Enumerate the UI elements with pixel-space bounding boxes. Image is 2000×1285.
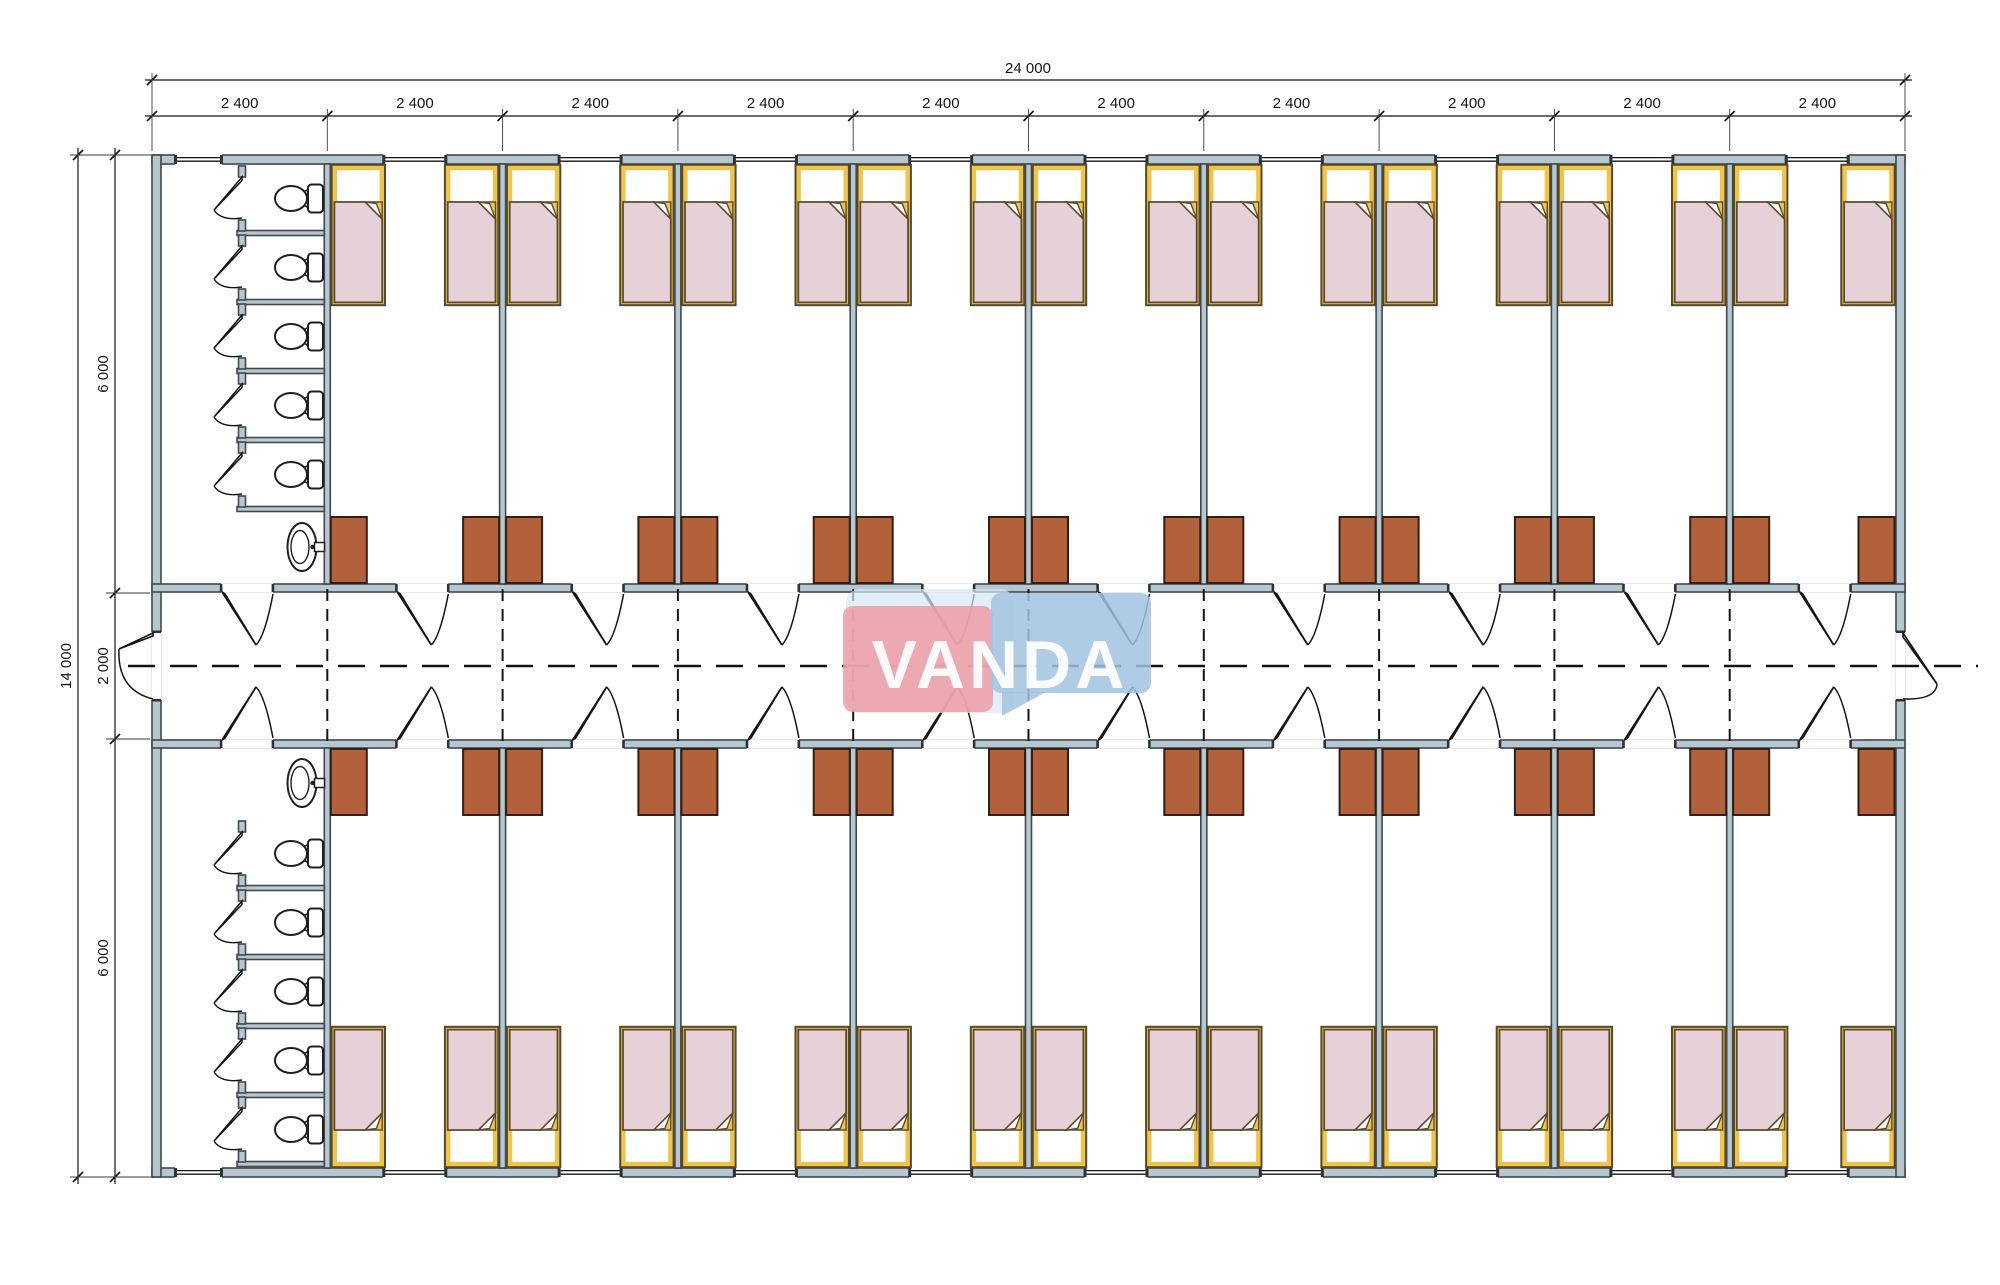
- window-opening: [734, 1167, 797, 1178]
- toilet-tank: [308, 185, 323, 213]
- window-jamb: [1496, 155, 1499, 164]
- door-jamb: [1148, 740, 1151, 748]
- bed-blanket: [1149, 1030, 1197, 1130]
- window-jamb: [1321, 155, 1324, 164]
- door-jamb: [220, 584, 223, 592]
- bed-blanket: [448, 202, 496, 302]
- bed: [507, 1027, 560, 1167]
- window-opening: [1085, 1167, 1148, 1178]
- bed-blanket: [974, 202, 1022, 302]
- stall-door-arc: [214, 417, 242, 426]
- door-leaf: [1800, 687, 1834, 740]
- window-jamb: [1609, 155, 1612, 164]
- bed: [1322, 1027, 1375, 1167]
- bed: [1734, 1027, 1787, 1167]
- door-jamb: [1674, 584, 1677, 592]
- bed-blanket: [1562, 202, 1610, 302]
- door-leaf: [1903, 633, 1937, 684]
- door-jamb: [973, 740, 976, 748]
- door-swing-arc: [1658, 594, 1675, 645]
- partition-wall: [675, 748, 681, 1168]
- door-jamb: [1447, 584, 1450, 592]
- wardrobe-cabinet: [857, 749, 893, 815]
- window-jamb: [1434, 1168, 1437, 1177]
- stall-door-jamb: [239, 289, 246, 300]
- toilet-bowl: [275, 1048, 307, 1073]
- bed: [620, 1027, 673, 1167]
- window-jamb: [733, 155, 736, 164]
- stall-door-arc: [214, 1072, 242, 1081]
- toilet-tank: [308, 254, 323, 282]
- door-jamb: [1849, 584, 1852, 592]
- bed-blanket: [798, 1030, 846, 1130]
- wardrobe-cabinet: [1032, 749, 1068, 815]
- door-swing-arc: [607, 687, 624, 738]
- partition-wall: [500, 164, 506, 584]
- window-opening: [1786, 154, 1849, 165]
- door-jamb: [570, 740, 573, 748]
- door-swing-arc: [1903, 684, 1937, 699]
- door-swing-arc: [1834, 594, 1851, 645]
- door-opening: [1273, 739, 1325, 749]
- window-opening: [1260, 1167, 1323, 1178]
- bed: [796, 1027, 849, 1167]
- door-opening: [221, 739, 273, 749]
- door-jamb: [1096, 740, 1099, 748]
- bed: [1322, 165, 1375, 305]
- toilet-bowl: [275, 462, 307, 487]
- bed-blanket: [1386, 202, 1434, 302]
- partition-wall: [850, 748, 856, 1168]
- dimension-label: 2 400: [1799, 95, 1837, 112]
- wardrobe-cabinet: [681, 517, 717, 583]
- door-leaf: [1449, 592, 1483, 645]
- stall-door-leaf: [214, 1108, 242, 1141]
- stall-door-arc: [214, 279, 242, 288]
- door-opening: [1799, 739, 1851, 749]
- door-swing-arc: [431, 594, 448, 645]
- door-swing-arc: [256, 687, 273, 738]
- door-leaf: [573, 592, 607, 645]
- toilet-bowl: [275, 841, 307, 866]
- stall-partition: [237, 1024, 324, 1029]
- wardrobe-cabinet: [1558, 749, 1594, 815]
- sink-drain: [310, 781, 314, 785]
- window-jamb: [1146, 1168, 1149, 1177]
- window-jamb: [174, 1168, 177, 1177]
- toilet: [275, 1047, 323, 1075]
- partition-wall: [1727, 164, 1733, 584]
- toilet-bowl: [275, 324, 307, 349]
- wardrobe-cabinet: [1207, 749, 1243, 815]
- toilet-tank: [308, 840, 323, 868]
- door-jamb: [1323, 584, 1326, 592]
- toilet-tank: [308, 978, 323, 1006]
- bed-blanket: [685, 1030, 733, 1130]
- toilet: [275, 1116, 323, 1144]
- bed: [971, 1027, 1024, 1167]
- wardrobe-cabinet: [1558, 517, 1594, 583]
- bed-blanket: [1324, 1030, 1372, 1130]
- stall-door-jamb: [239, 1028, 246, 1039]
- bed-blanket: [334, 1030, 382, 1130]
- bed-blanket: [685, 202, 733, 302]
- window-opening: [734, 154, 797, 165]
- door-leaf: [397, 592, 431, 645]
- window-jamb: [1084, 155, 1087, 164]
- sink-tap: [315, 779, 325, 788]
- stall-door-jamb: [239, 875, 246, 886]
- wardrobe-cabinet: [1859, 749, 1895, 815]
- sink-drain: [310, 545, 314, 549]
- dimension-label: 2 400: [571, 95, 609, 112]
- stall-door-jamb: [239, 821, 246, 832]
- door-jamb: [447, 584, 450, 592]
- toilet: [275, 185, 323, 213]
- door-opening: [1799, 583, 1851, 593]
- window-opening: [1610, 154, 1673, 165]
- window-jamb: [1785, 155, 1788, 164]
- partition-wall: [1727, 748, 1733, 1168]
- toilet-tank: [308, 392, 323, 420]
- stall-door-jamb: [239, 1082, 246, 1093]
- window-opening: [1610, 1167, 1673, 1178]
- stall-door-jamb: [239, 235, 246, 246]
- stall-door-leaf: [214, 384, 242, 417]
- window-opening: [559, 1167, 622, 1178]
- window-opening: [1435, 154, 1498, 165]
- wardrobe-cabinet: [1164, 749, 1200, 815]
- stall-partition: [237, 231, 324, 236]
- toilet-tank: [308, 909, 323, 937]
- door-jamb: [1499, 584, 1502, 592]
- window-jamb: [970, 155, 973, 164]
- bed-blanket: [1500, 202, 1548, 302]
- stall-door-jamb: [239, 496, 246, 507]
- door-swing-arc: [1308, 594, 1325, 645]
- stall-door-leaf: [214, 970, 242, 1003]
- stall-door-jamb: [239, 220, 246, 231]
- bed-blanket: [1036, 202, 1084, 302]
- bed-blanket: [1844, 202, 1892, 302]
- door-jamb: [1622, 584, 1625, 592]
- stall-partition: [237, 1093, 324, 1098]
- toilet-tank: [308, 1047, 323, 1075]
- door-swing-arc: [431, 687, 448, 738]
- wardrobe-cabinet: [506, 749, 542, 815]
- toilet-tank: [308, 323, 323, 351]
- window-opening: [1786, 1167, 1849, 1178]
- door-leaf: [222, 687, 256, 740]
- window-jamb: [795, 1168, 798, 1177]
- door-opening: [221, 583, 273, 593]
- door-opening: [922, 739, 974, 749]
- stall-door-leaf: [214, 832, 242, 865]
- window-opening: [1085, 154, 1148, 165]
- window-opening: [175, 1167, 222, 1178]
- window-opening: [1260, 154, 1323, 165]
- toilet: [275, 392, 323, 420]
- bed-blanket: [1211, 1030, 1259, 1130]
- dimension-label: 14 000: [58, 643, 75, 689]
- bed: [1842, 1027, 1895, 1167]
- window-jamb: [1847, 155, 1850, 164]
- window-jamb: [908, 155, 911, 164]
- bed: [796, 165, 849, 305]
- door-jamb: [921, 740, 924, 748]
- door-opening: [572, 739, 624, 749]
- dimension-label: 6 000: [95, 355, 112, 393]
- wardrobe-cabinet: [331, 517, 367, 583]
- partition-wall: [1026, 748, 1032, 1168]
- door-jamb: [1798, 584, 1801, 592]
- partition-wall: [1551, 164, 1557, 584]
- window-jamb: [558, 155, 561, 164]
- wardrobe-cabinet: [857, 517, 893, 583]
- stall-partition: [237, 300, 324, 305]
- bed: [1146, 165, 1199, 305]
- bed: [682, 165, 735, 305]
- wardrobe-cabinet: [814, 517, 850, 583]
- bed: [1033, 165, 1086, 305]
- door-swing-arc: [1133, 687, 1150, 738]
- toilet-bowl: [275, 979, 307, 1004]
- stall-door-jamb: [239, 373, 246, 384]
- toilet-tank: [308, 461, 323, 489]
- stall-door-jamb: [239, 959, 246, 970]
- bed: [1734, 165, 1787, 305]
- bed-blanket: [1675, 1030, 1723, 1130]
- partition-wall: [1551, 748, 1557, 1168]
- window-jamb: [382, 155, 385, 164]
- wardrobe-cabinet: [1340, 749, 1376, 815]
- bed: [858, 1027, 911, 1167]
- bed: [1672, 1027, 1725, 1167]
- wardrobe-cabinet: [506, 517, 542, 583]
- bed: [1559, 1027, 1612, 1167]
- door-opening: [1448, 739, 1500, 749]
- bed: [1842, 165, 1895, 305]
- stall-door-leaf: [214, 246, 242, 279]
- door-jamb: [1323, 740, 1326, 748]
- bed-blanket: [860, 202, 908, 302]
- door-jamb: [746, 584, 749, 592]
- wardrobe-cabinet: [1690, 517, 1726, 583]
- bed-blanket: [1562, 1030, 1610, 1130]
- bed: [858, 165, 911, 305]
- wardrobe-cabinet: [681, 749, 717, 815]
- window-jamb: [1321, 1168, 1324, 1177]
- bed-blanket: [448, 1030, 496, 1130]
- toilet: [275, 840, 323, 868]
- window-jamb: [1259, 1168, 1262, 1177]
- door-swing-arc: [1483, 594, 1500, 645]
- window-jamb: [444, 155, 447, 164]
- door-leaf: [1624, 687, 1658, 740]
- dimension-label: 2 400: [1097, 95, 1135, 112]
- partition-wall: [850, 164, 856, 584]
- wardrobe-cabinet: [1733, 749, 1769, 815]
- toilet-bowl: [275, 186, 307, 211]
- window-jamb: [620, 1168, 623, 1177]
- stall-door-leaf: [214, 453, 242, 486]
- window-jamb: [733, 1168, 736, 1177]
- window-opening: [559, 154, 622, 165]
- stall-door-jamb: [239, 442, 246, 453]
- bed: [1384, 1027, 1437, 1167]
- stall-door-jamb: [239, 427, 246, 438]
- toilet: [275, 254, 323, 282]
- dimension-label: 2 400: [396, 95, 434, 112]
- window-jamb: [1084, 1168, 1087, 1177]
- window-opening: [383, 154, 446, 165]
- dimension-label: 24 000: [1005, 60, 1051, 77]
- dimension-label: 2 400: [1448, 95, 1486, 112]
- dimension-label: 6 000: [95, 939, 112, 977]
- window-jamb: [1146, 155, 1149, 164]
- bed: [332, 165, 385, 305]
- wardrobe-cabinet: [989, 517, 1025, 583]
- door-jamb: [1272, 584, 1275, 592]
- door-swing-arc: [782, 594, 799, 645]
- partition-wall: [500, 748, 506, 1168]
- door-leaf: [748, 592, 782, 645]
- stall-partition: [237, 438, 324, 443]
- bed-blanket: [974, 1030, 1022, 1130]
- toilet-bowl: [275, 1117, 307, 1142]
- window-opening: [909, 1167, 972, 1178]
- bed: [1384, 165, 1437, 305]
- toilet: [275, 461, 323, 489]
- door-leaf: [397, 687, 431, 740]
- window-jamb: [970, 1168, 973, 1177]
- bed-blanket: [1036, 1030, 1084, 1130]
- door-swing-arc: [1834, 687, 1851, 738]
- window-jamb: [620, 155, 623, 164]
- partition-wall: [1376, 164, 1382, 584]
- window-opening: [383, 1167, 446, 1178]
- bed-blanket: [1737, 202, 1785, 302]
- door-swing-arc: [782, 687, 799, 738]
- door-leaf: [1274, 592, 1308, 645]
- door-jamb: [1272, 740, 1275, 748]
- bed: [332, 1027, 385, 1167]
- window-opening: [909, 154, 972, 165]
- door-jamb: [798, 740, 801, 748]
- stall-partition: [237, 369, 324, 374]
- toilet-bowl: [275, 255, 307, 280]
- window-jamb: [1434, 155, 1437, 164]
- bed-blanket: [1149, 202, 1197, 302]
- vanda-watermark: VANDA: [843, 589, 1151, 716]
- window-jamb: [174, 155, 177, 164]
- bed: [1208, 165, 1261, 305]
- door-leaf: [119, 633, 153, 649]
- stall-door-arc: [214, 486, 242, 495]
- bed-blanket: [623, 202, 671, 302]
- window-jamb: [1609, 1168, 1612, 1177]
- partition-wall: [1376, 748, 1382, 1168]
- toilet: [275, 323, 323, 351]
- stall-door-arc: [214, 865, 242, 874]
- door-swing-arc: [1483, 687, 1500, 738]
- stall-partition: [237, 507, 324, 512]
- bed: [445, 165, 498, 305]
- partition-wall: [1201, 748, 1207, 1168]
- window-jamb: [1847, 1168, 1850, 1177]
- bed: [1497, 1027, 1550, 1167]
- door-jamb: [272, 584, 275, 592]
- door-jamb: [1798, 740, 1801, 748]
- door-leaf: [1800, 592, 1834, 645]
- wardrobe-cabinet: [1207, 517, 1243, 583]
- stall-door-leaf: [214, 901, 242, 934]
- window-jamb: [382, 1168, 385, 1177]
- door-jamb: [1622, 740, 1625, 748]
- door-swing-arc: [1658, 687, 1675, 738]
- bed: [971, 165, 1024, 305]
- stall-door-arc: [214, 934, 242, 943]
- stall-door-arc: [214, 348, 242, 357]
- door-opening: [1623, 583, 1675, 593]
- stall-door-jamb: [239, 944, 246, 955]
- stall-door-leaf: [214, 1039, 242, 1072]
- window-opening: [1435, 1167, 1498, 1178]
- window-jamb: [1671, 1168, 1674, 1177]
- window-jamb: [220, 1168, 223, 1177]
- door-leaf: [1449, 687, 1483, 740]
- toilet-bowl: [275, 910, 307, 935]
- partition-wall: [1201, 164, 1207, 584]
- wardrobe-cabinet: [1515, 749, 1551, 815]
- partition-wall: [324, 164, 330, 584]
- door-opening: [1273, 583, 1325, 593]
- window-jamb: [220, 155, 223, 164]
- bed-blanket: [1211, 202, 1259, 302]
- door-leaf: [748, 687, 782, 740]
- door-jamb: [447, 740, 450, 748]
- partition-wall: [675, 164, 681, 584]
- stall-door-jamb: [239, 166, 246, 177]
- door-opening: [396, 583, 448, 593]
- stall-door-leaf: [214, 315, 242, 348]
- door-swing-arc: [119, 649, 153, 699]
- wardrobe-cabinet: [331, 749, 367, 815]
- door-jamb: [1096, 584, 1099, 592]
- wardrobe-cabinet: [1859, 517, 1895, 583]
- bed: [1559, 165, 1612, 305]
- door-jamb: [1447, 740, 1450, 748]
- door-jamb: [1674, 740, 1677, 748]
- window-opening: [175, 154, 222, 165]
- door-jamb: [1849, 740, 1852, 748]
- wardrobe-cabinet: [463, 749, 499, 815]
- dimension-label: 2 400: [922, 95, 960, 112]
- door-leaf: [222, 592, 256, 645]
- sink: [288, 759, 325, 807]
- dimension-label: 2 400: [1273, 95, 1311, 112]
- stall-door-jamb: [239, 1013, 246, 1024]
- bed-blanket: [1386, 1030, 1434, 1130]
- bed: [620, 165, 673, 305]
- window-jamb: [558, 1168, 561, 1177]
- window-jamb: [1671, 155, 1674, 164]
- partition-wall: [1026, 164, 1032, 584]
- bed-blanket: [1500, 1030, 1548, 1130]
- bed-blanket: [1737, 1030, 1785, 1130]
- bed: [445, 1027, 498, 1167]
- bed-blanket: [1324, 202, 1372, 302]
